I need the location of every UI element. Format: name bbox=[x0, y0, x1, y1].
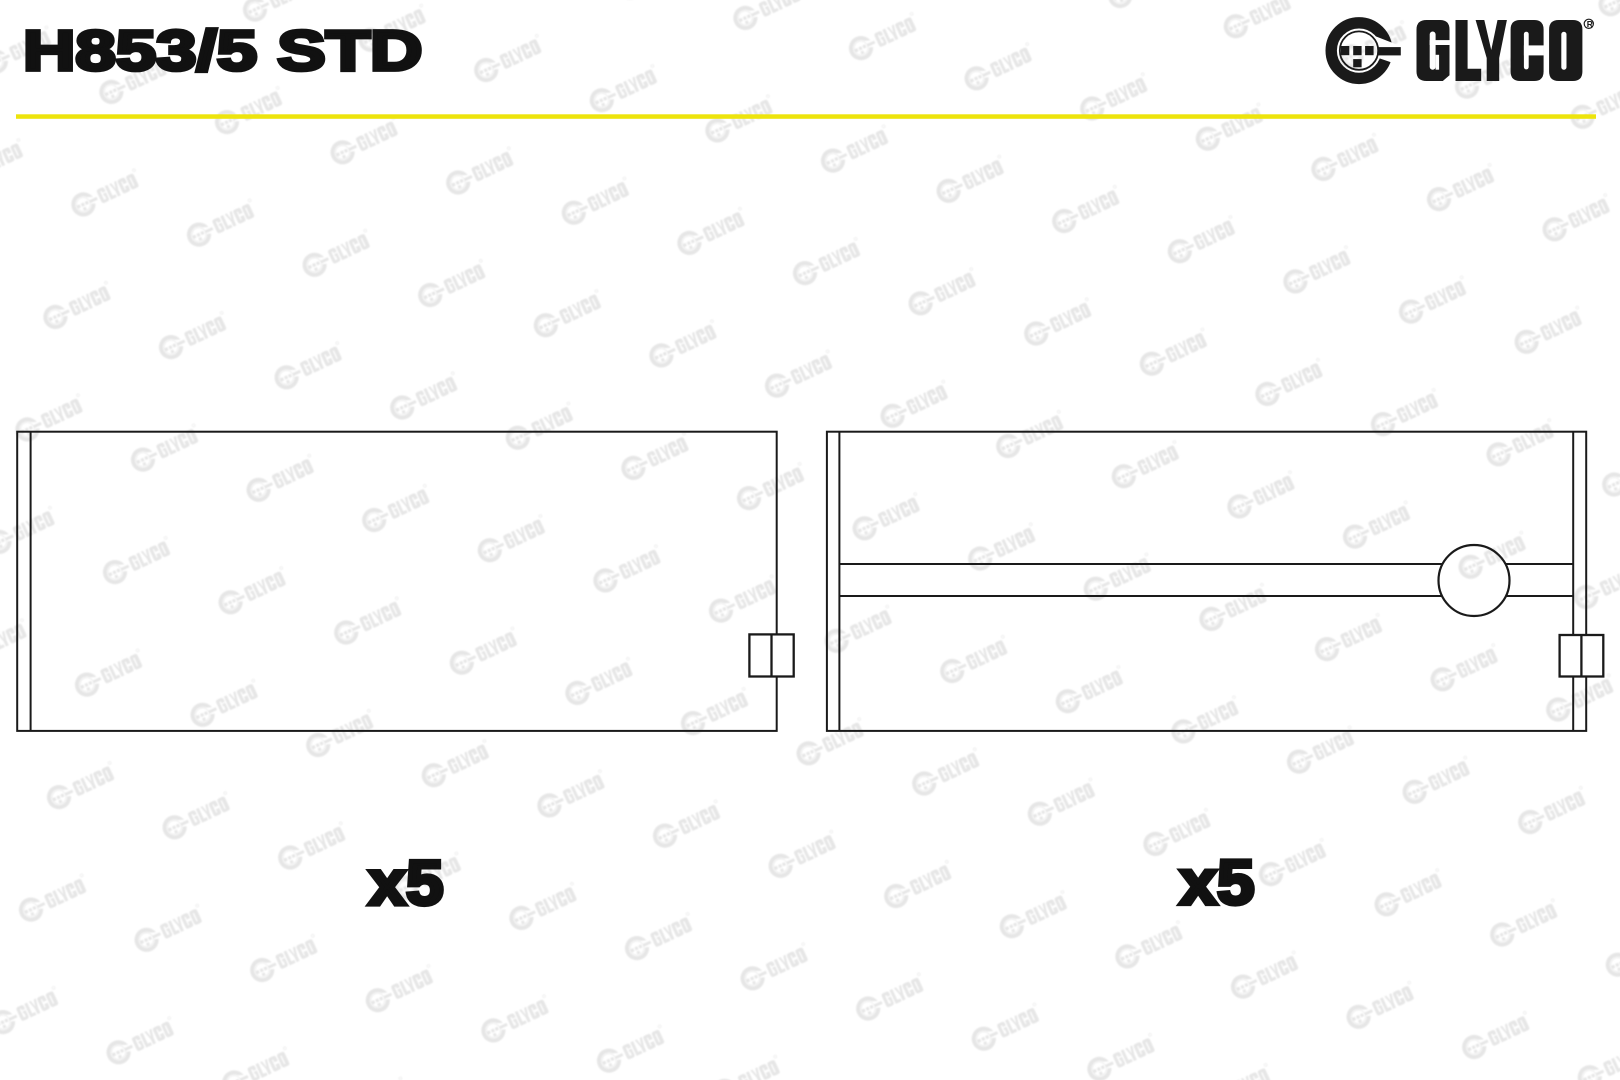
svg-text:H853/5 STD: H853/5 STD bbox=[23, 19, 422, 82]
svg-text:x5: x5 bbox=[369, 848, 444, 918]
svg-text:x5: x5 bbox=[1180, 847, 1255, 917]
svg-text:R: R bbox=[1587, 19, 1593, 29]
